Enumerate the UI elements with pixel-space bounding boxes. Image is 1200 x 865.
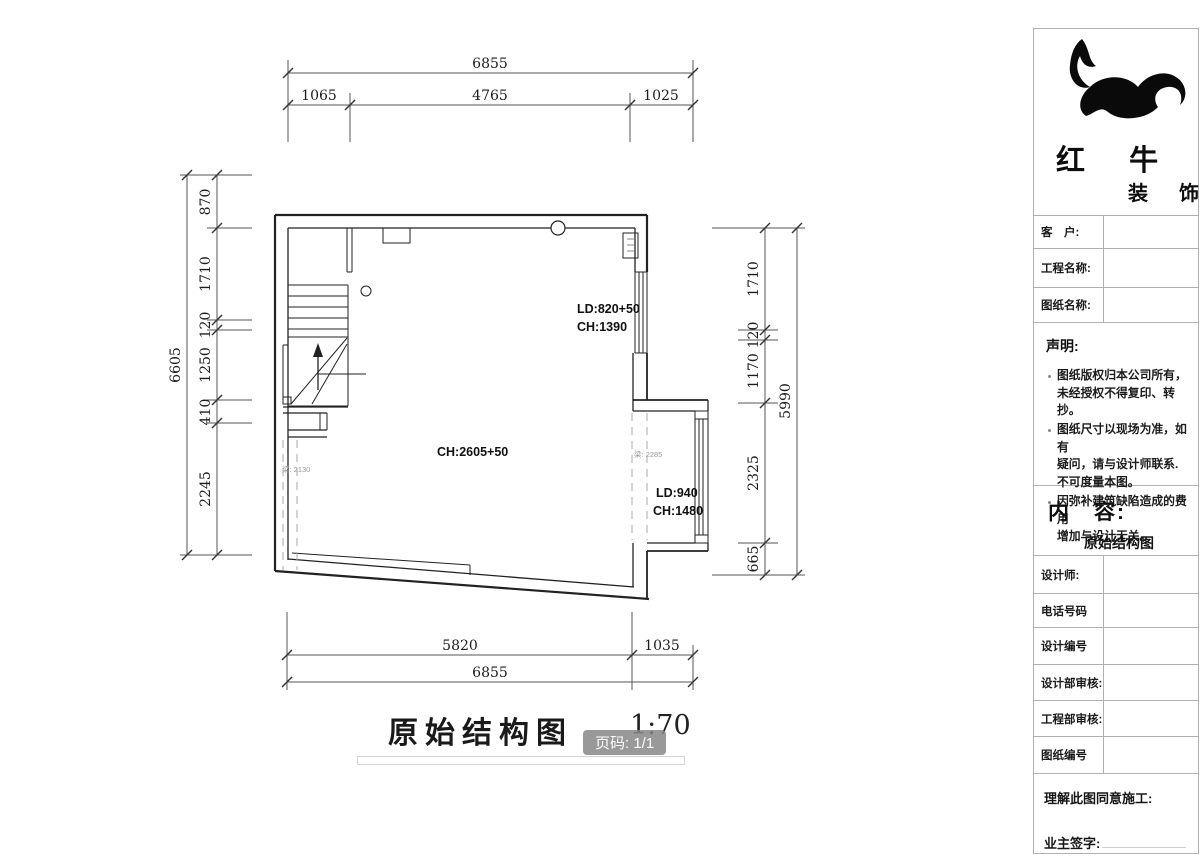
dim-left-2245: 2245 (198, 471, 214, 507)
row-engineering-review: 工程部审核: (1034, 701, 1198, 737)
designer-label: 设计师: (1034, 556, 1104, 593)
dim-left-120: 120 (198, 312, 214, 339)
signature-cell: 理解此图同意施工: 业主签字: (1034, 774, 1198, 853)
customer-label: 客 户: (1034, 216, 1104, 248)
drawing-no-label: 图纸编号 (1034, 737, 1104, 773)
content-cell: 内 容: 原始结构图 (1034, 486, 1198, 556)
statement-cell: 声明: 图纸版权归本公司所有， 未经授权不得复印、转抄。 图纸尺寸以现场为准，如… (1034, 323, 1198, 486)
dim-left-lines (180, 175, 252, 555)
dim-left-1710: 1710 (198, 256, 214, 292)
dim-top-text: 6855 1065 4765 1025 (301, 56, 679, 104)
drawing-title: 原始结构图 (388, 708, 573, 752)
title-block-panel: 红 牛 装 饰 客 户: 工程名称: 图纸名称: 声明: 图纸版权归本公司所有，… (1033, 28, 1199, 854)
dim-left-text: 6605 870 1710 120 1250 410 2245 (168, 189, 214, 507)
design-no-label: 设计编号 (1034, 628, 1104, 664)
cad-drawing-page: LD:820+50 CH:1390 CH:2605+50 LD:940 CH:1… (0, 0, 1200, 865)
dim-top-4765: 4765 (472, 88, 508, 104)
dim-top-1065: 1065 (301, 88, 337, 104)
row-phone: 电话号码 (1034, 594, 1198, 628)
statement-title: 声明: (1046, 336, 1194, 356)
dim-right-120: 120 (746, 322, 762, 349)
dim-bottom-overall: 6855 (472, 665, 508, 681)
staircase (283, 228, 371, 406)
statement-item-1: 图纸版权归本公司所有， 未经授权不得复印、转抄。 (1046, 367, 1194, 420)
flue-circle (551, 221, 565, 235)
dim-right-text: 1710 120 1170 2325 665 5990 (746, 261, 794, 572)
design-review-label: 设计部审核: (1034, 665, 1104, 700)
dim-top-overall: 6855 (472, 56, 508, 72)
row-design-no: 设计编号 (1034, 628, 1198, 665)
room-labels: LD:820+50 CH:1390 CH:2605+50 LD:940 CH:1… (282, 302, 703, 518)
dim-left-870: 870 (198, 189, 214, 216)
room-ceiling-label: CH:2605+50 (437, 445, 508, 459)
dim-right-665: 665 (746, 546, 762, 573)
owner-signature-label: 业主签字: (1044, 836, 1100, 851)
drawing-name-label: 图纸名称: (1034, 288, 1104, 322)
logo-cell: 红 牛 装 饰 (1034, 29, 1198, 216)
owner-signature-row: 业主签字: (1044, 833, 1198, 852)
dim-bottom-text: 5820 1035 6855 (442, 638, 680, 681)
window-top-ld-label: LD:820+50 (577, 302, 640, 316)
agreement-label: 理解此图同意施工: (1044, 788, 1198, 807)
content-label: 内 容: (1048, 496, 1198, 526)
row-drawing-no: 图纸编号 (1034, 737, 1198, 774)
dim-top-1025: 1025 (643, 88, 679, 104)
window-top-ch-label: CH:1390 (577, 320, 627, 334)
page-number-badge: 页码: 1/1 (583, 730, 666, 755)
bull-logo-icon (1044, 35, 1194, 139)
dim-bottom-5820: 5820 (442, 638, 478, 654)
brand-name-bottom: 装 饰 (1128, 177, 1200, 206)
row-design-review: 设计部审核: (1034, 665, 1198, 701)
equipment-box (623, 233, 638, 258)
signature-line (1102, 835, 1186, 848)
project-name-label: 工程名称: (1034, 249, 1104, 287)
row-drawing-name: 图纸名称: (1034, 288, 1198, 323)
dim-right-overall: 5990 (778, 383, 794, 419)
dim-right-2325: 2325 (746, 455, 762, 491)
dim-right-1710: 1710 (746, 261, 762, 297)
content-value: 原始结构图 (1084, 533, 1198, 553)
dim-left-1250: 1250 (198, 347, 214, 383)
beam-right-label: 梁: 2285 (634, 450, 662, 459)
row-customer: 客 户: (1034, 216, 1198, 249)
dim-bottom-1035: 1035 (644, 638, 680, 654)
title-underline-bar (357, 756, 685, 765)
statement-item-2: 图纸尺寸以现场为准，如有 疑问，请与设计师联系. 不可度量本图。 (1046, 421, 1194, 492)
window-right-ld-label: LD:940 (656, 486, 698, 500)
dim-left-overall: 6605 (168, 347, 184, 383)
stair-direction-arrowhead (313, 343, 323, 357)
wall-niche-box (383, 228, 410, 243)
beam-left-label: 梁: 2130 (282, 465, 310, 474)
dim-right-1170: 1170 (746, 353, 762, 389)
row-project-name: 工程名称: (1034, 249, 1198, 288)
engineering-review-label: 工程部审核: (1034, 701, 1104, 736)
dim-left-410: 410 (198, 399, 214, 426)
beam-dashes (283, 413, 647, 570)
row-designer: 设计师: (1034, 556, 1198, 594)
window-right-ch-label: CH:1480 (653, 504, 703, 518)
brand-name-top: 红 牛 (1056, 137, 1175, 179)
phone-label: 电话号码 (1034, 594, 1104, 627)
